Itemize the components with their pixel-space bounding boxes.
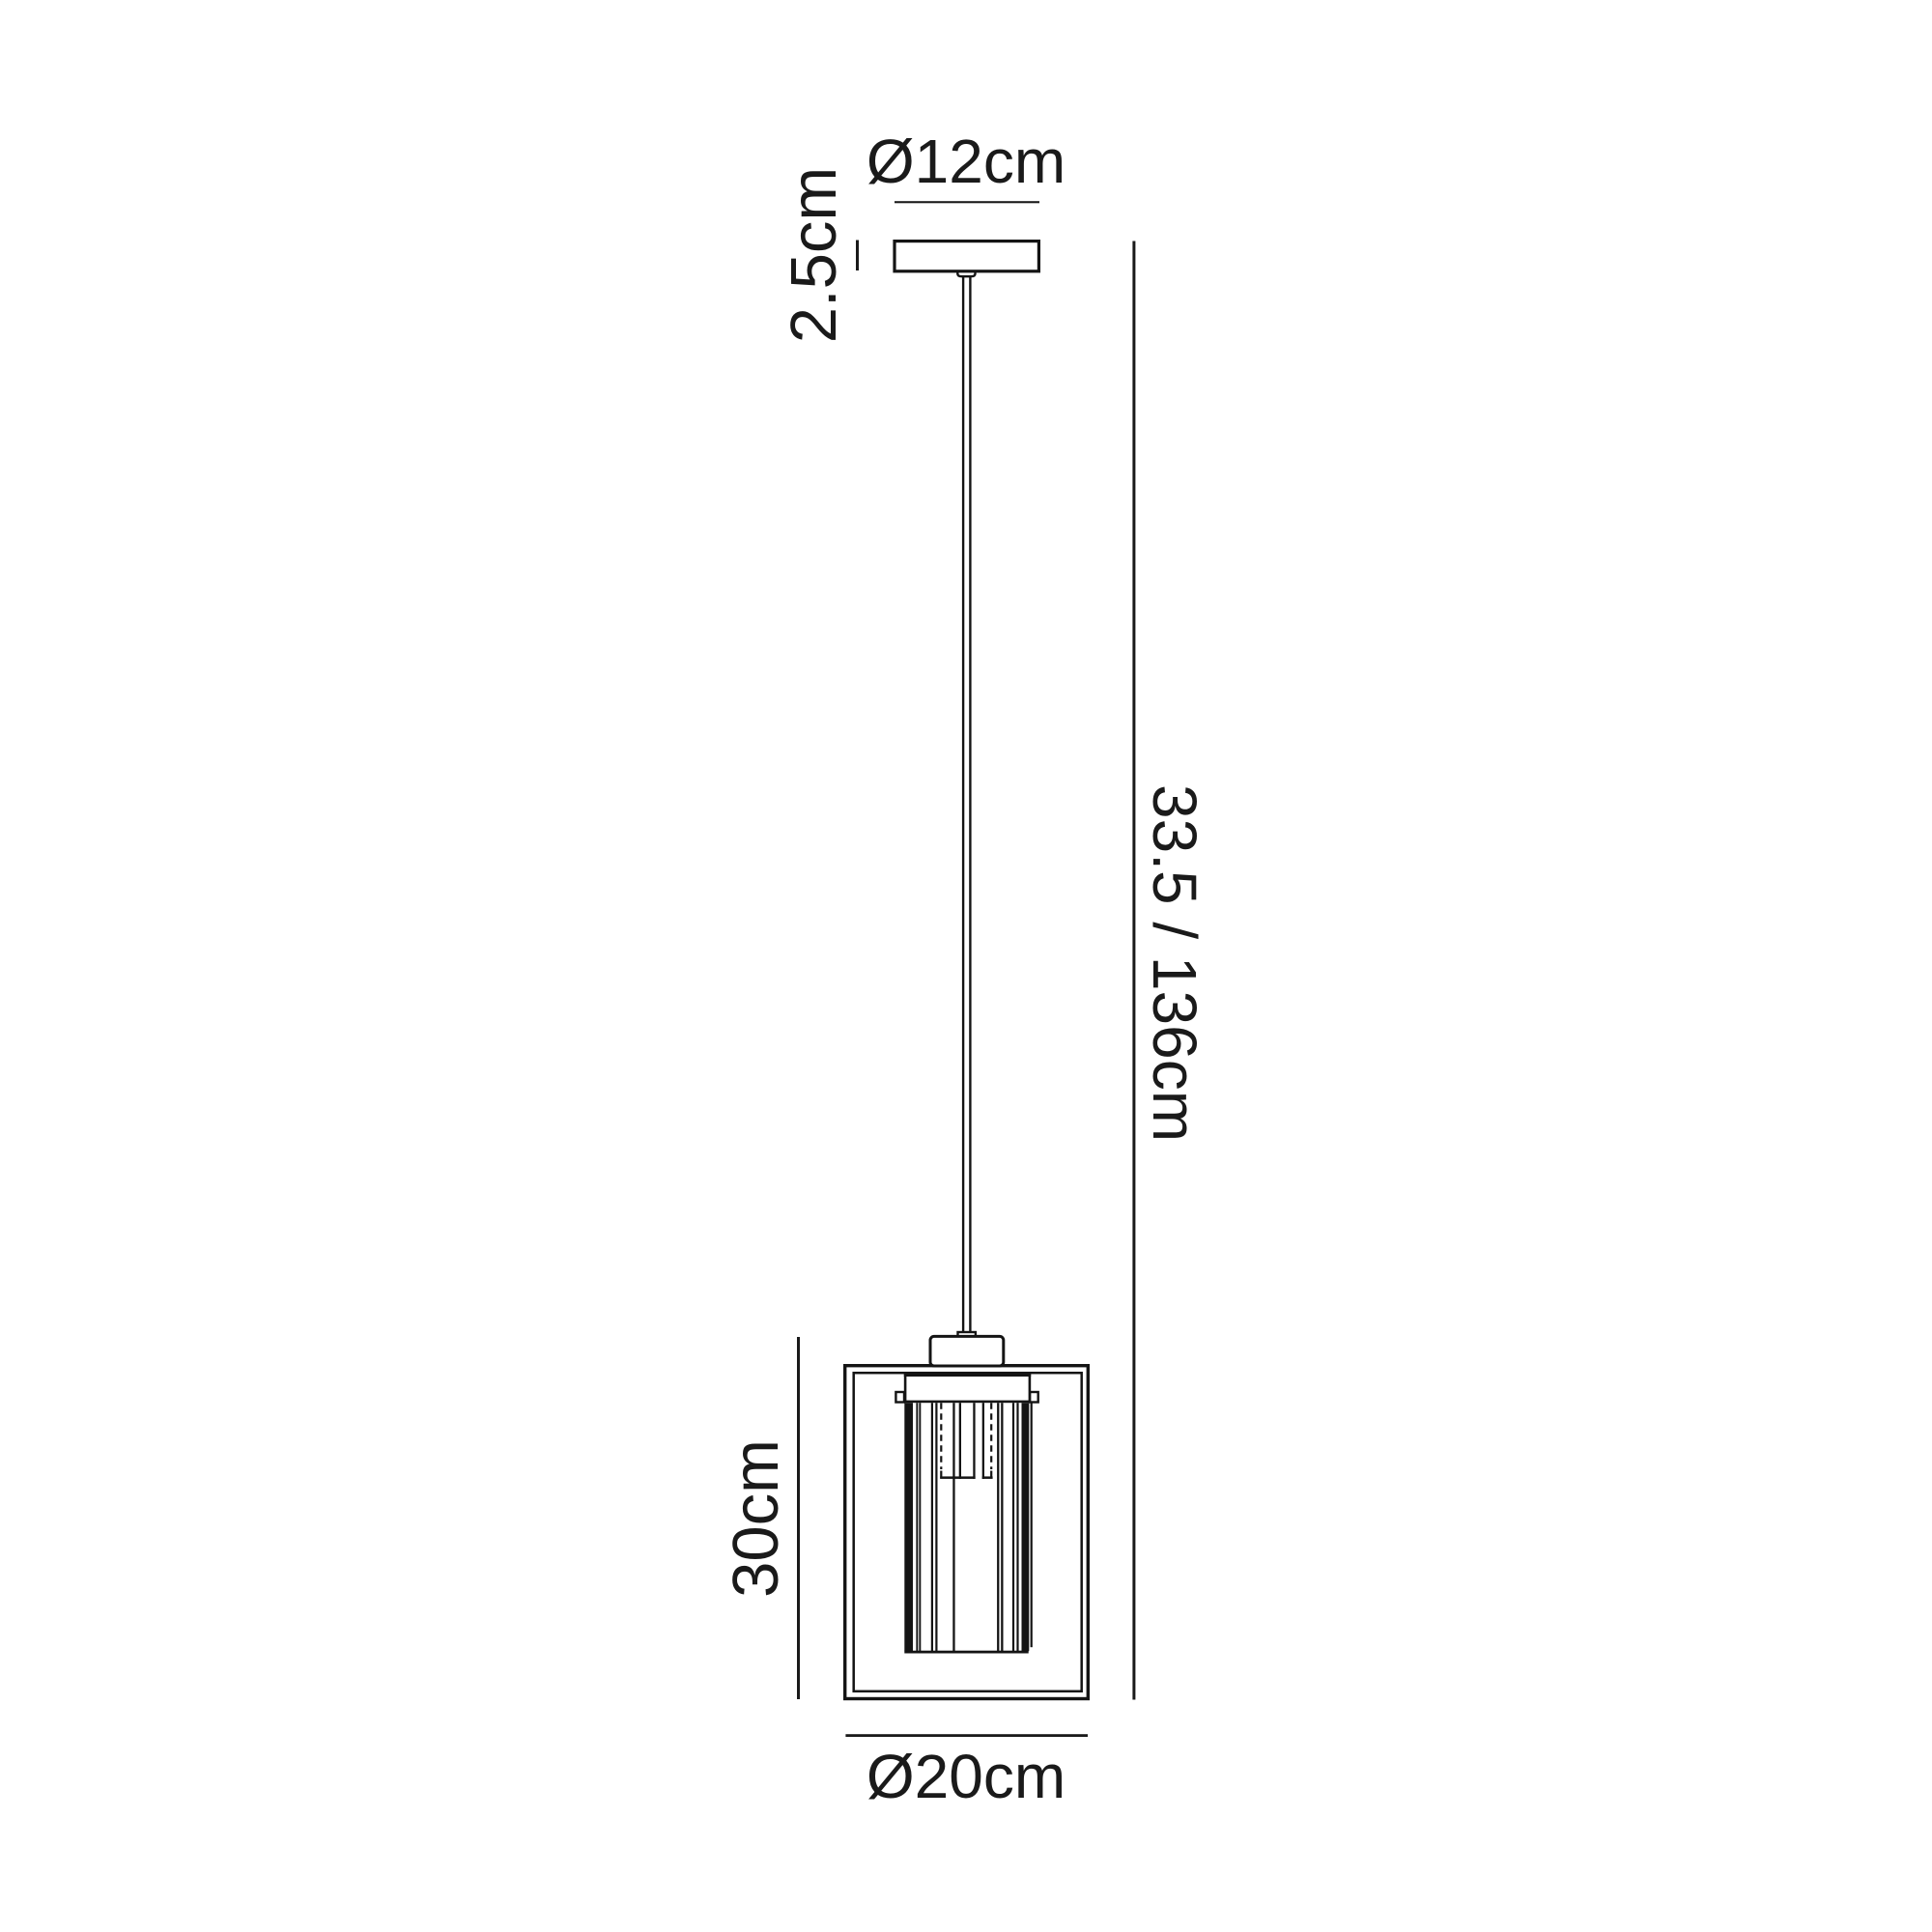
svg-text:30cm: 30cm	[720, 1439, 792, 1598]
svg-text:33.5 / 136cm: 33.5 / 136cm	[1140, 784, 1209, 1142]
svg-text:2.5cm: 2.5cm	[778, 167, 850, 343]
svg-text:Ø20cm: Ø20cm	[867, 1742, 1065, 1811]
svg-text:Ø12cm: Ø12cm	[867, 127, 1065, 196]
